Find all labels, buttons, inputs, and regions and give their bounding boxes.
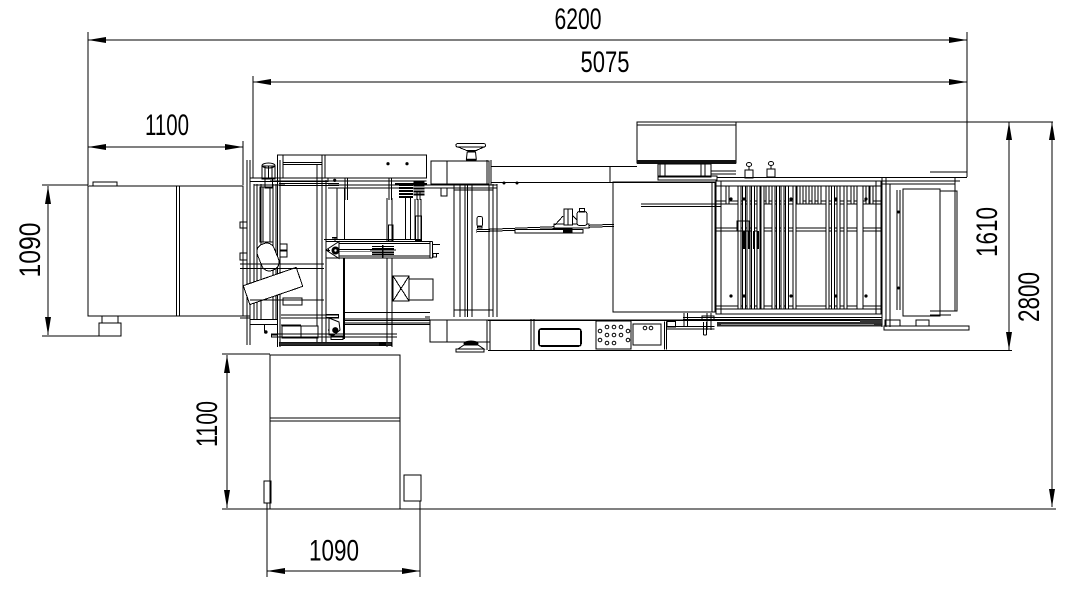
svg-text:1610: 1610: [971, 207, 1004, 257]
svg-text:2800: 2800: [1013, 272, 1046, 322]
svg-text:6200: 6200: [555, 3, 602, 36]
svg-text:1090: 1090: [14, 223, 47, 278]
svg-text:1100: 1100: [145, 109, 189, 142]
svg-text:5075: 5075: [581, 46, 630, 79]
svg-text:1100: 1100: [191, 401, 224, 447]
svg-text:1090: 1090: [309, 534, 359, 567]
